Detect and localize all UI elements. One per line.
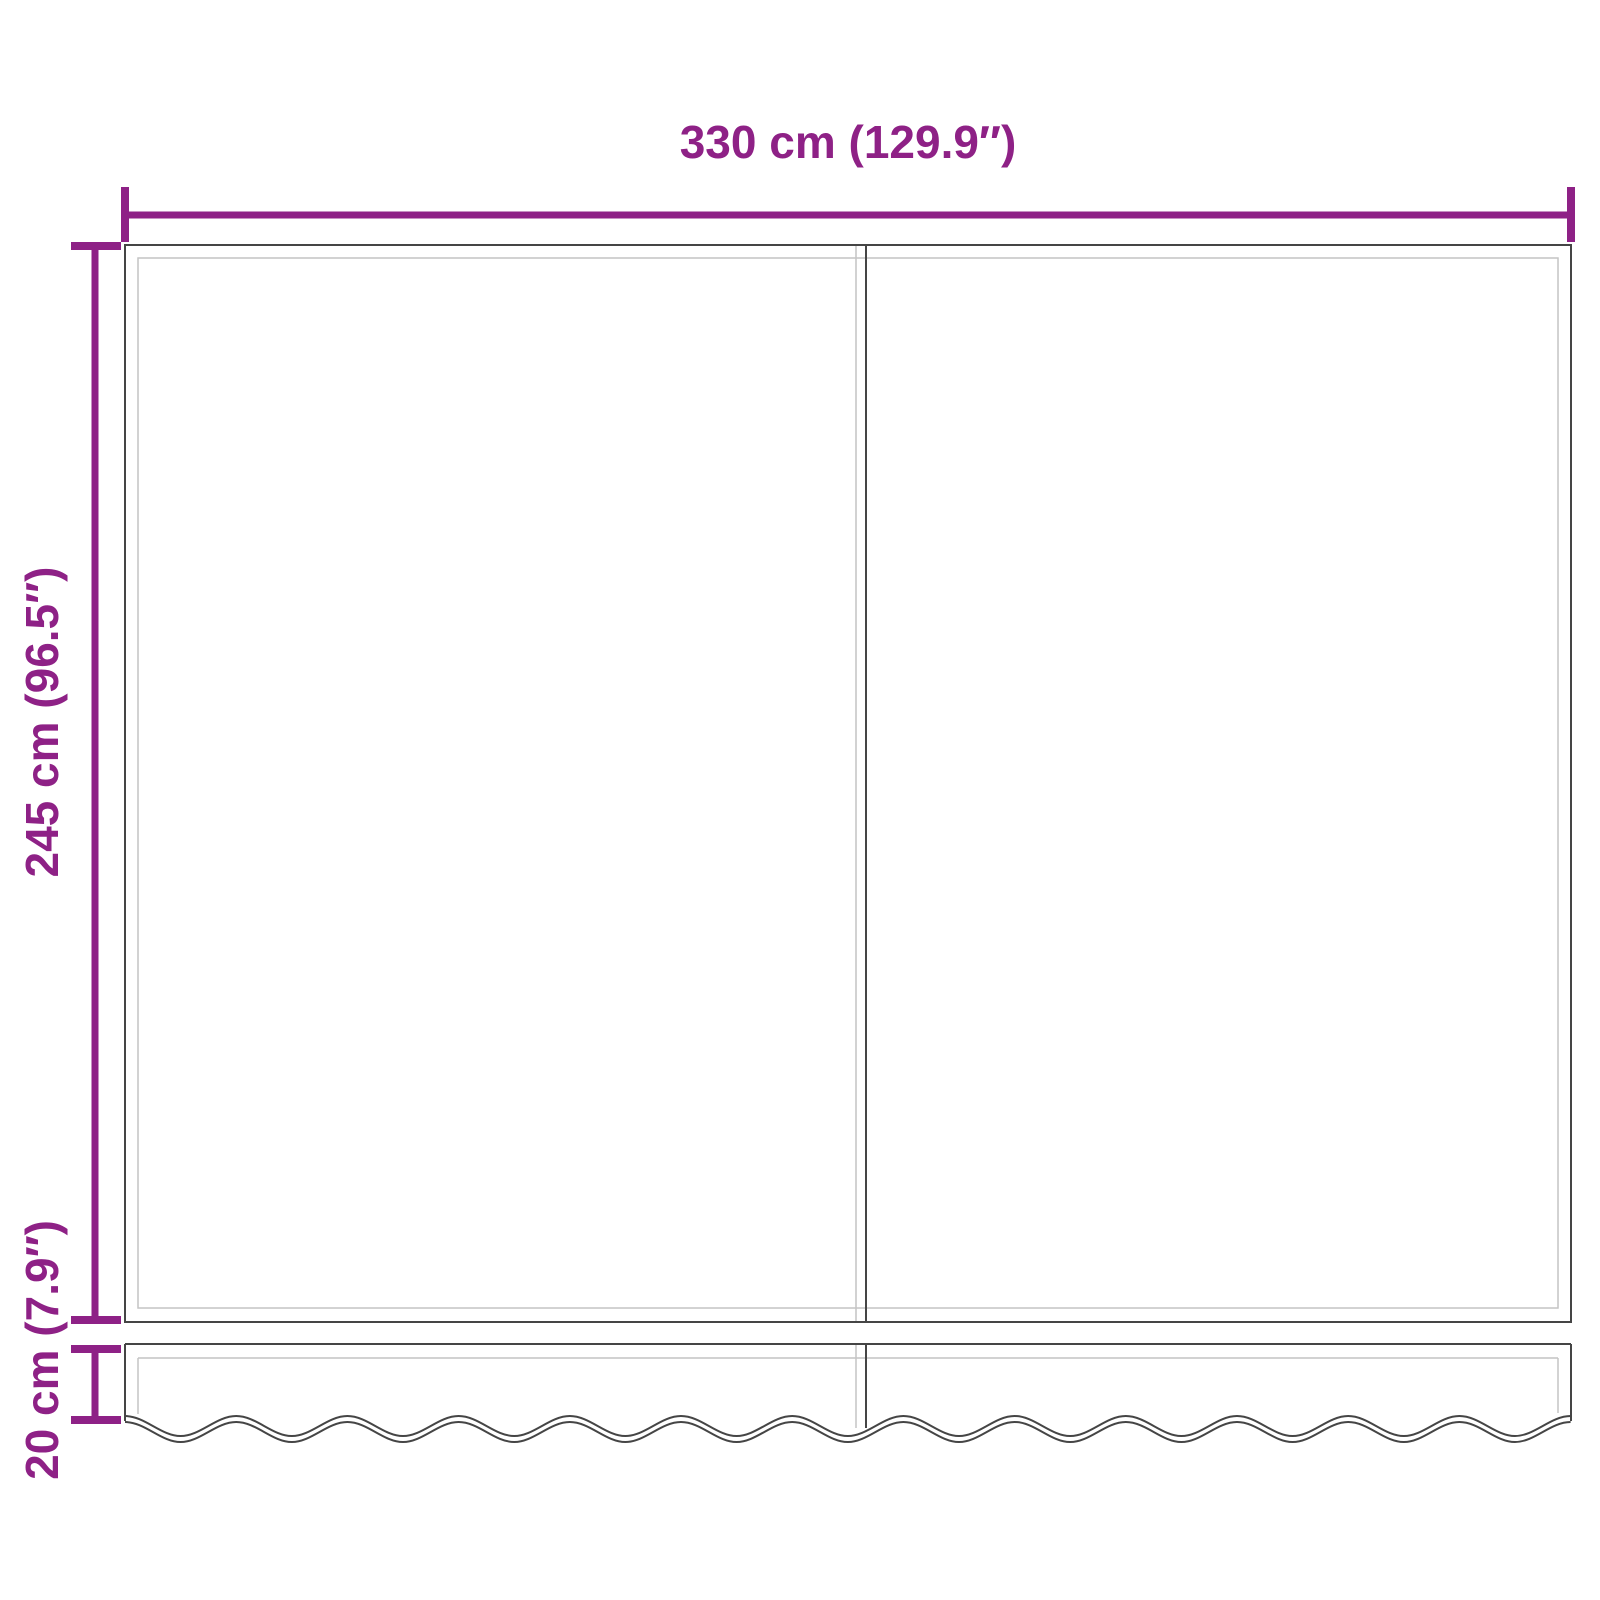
- fabric-panel: [125, 245, 1571, 1322]
- valance-strip: [125, 1344, 1571, 1442]
- valance-wavy-edge-inner: [125, 1422, 1571, 1442]
- height-dimension: 245 cm (96.5″): [16, 246, 121, 1320]
- awning-fabric-dimension-diagram: 330 cm (129.9″) 245 cm (96.5″) 20 cm (7.…: [0, 0, 1600, 1600]
- width-dimension: 330 cm (129.9″): [125, 116, 1571, 242]
- fabric-panel-inner-hem-line: [138, 258, 1558, 1308]
- fabric-panel-outline: [125, 245, 1571, 1322]
- height-dimension-label: 245 cm (96.5″): [16, 567, 68, 878]
- valance-wavy-edge-outer: [125, 1416, 1571, 1436]
- dimension-diagram-page: 330 cm (129.9″) 245 cm (96.5″) 20 cm (7.…: [0, 0, 1600, 1600]
- valance-dimension-label: 20 cm (7.9″): [16, 1220, 68, 1480]
- valance-height-dimension: 20 cm (7.9″): [16, 1220, 121, 1480]
- width-dimension-label: 330 cm (129.9″): [680, 116, 1017, 168]
